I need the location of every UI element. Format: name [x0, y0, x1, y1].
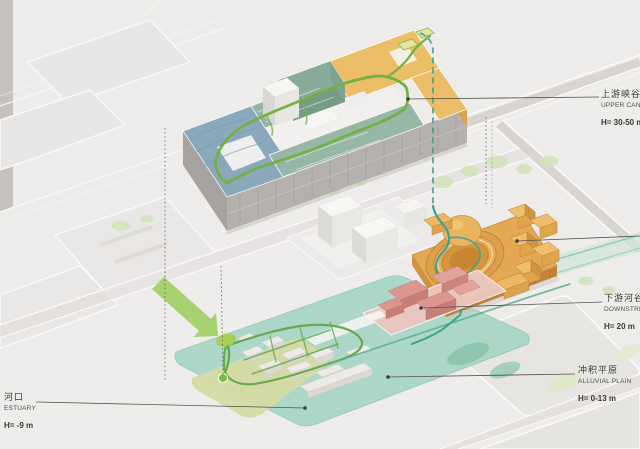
label-estuary-en: ESTUARY	[4, 406, 36, 413]
label-estuary-zh: 河口	[4, 393, 36, 402]
label-downstream-en: DOWNSTREAM	[604, 307, 640, 314]
label-upper-canyon-zh: 上游峡谷	[601, 90, 640, 99]
label-downstream-zh: 下游河谷	[604, 294, 640, 303]
site-axonometric-illustration	[0, 0, 640, 449]
site-axonometric-diagram: 上游峡谷 UPPER CANYON H= 30-50 m 下游河谷 DOWNST…	[0, 0, 640, 449]
label-alluvial-elevation: H= 0-13 m	[578, 395, 632, 403]
label-upper-canyon: 上游峡谷 UPPER CANYON H= 30-50 m	[601, 90, 640, 127]
label-estuary-elevation: H= -9 m	[4, 422, 36, 430]
label-alluvial-en: ALLUVIAL PLAIN	[578, 379, 632, 386]
label-estuary: 河口 ESTUARY H= -9 m	[4, 393, 36, 430]
label-upper-canyon-elevation: H= 30-50 m	[601, 119, 640, 127]
label-alluvial-zh: 冲积平原	[578, 366, 632, 375]
route-point	[219, 374, 228, 383]
label-upper-canyon-en: UPPER CANYON	[601, 103, 640, 110]
edge-tower-strip	[0, 0, 13, 212]
label-downstream-elevation: H= 20 m	[604, 323, 640, 331]
label-downstream-valley: 下游河谷 DOWNSTREAM H= 20 m	[604, 294, 640, 331]
label-alluvial-plain: 冲积平原 ALLUVIAL PLAIN H= 0-13 m	[578, 366, 632, 403]
